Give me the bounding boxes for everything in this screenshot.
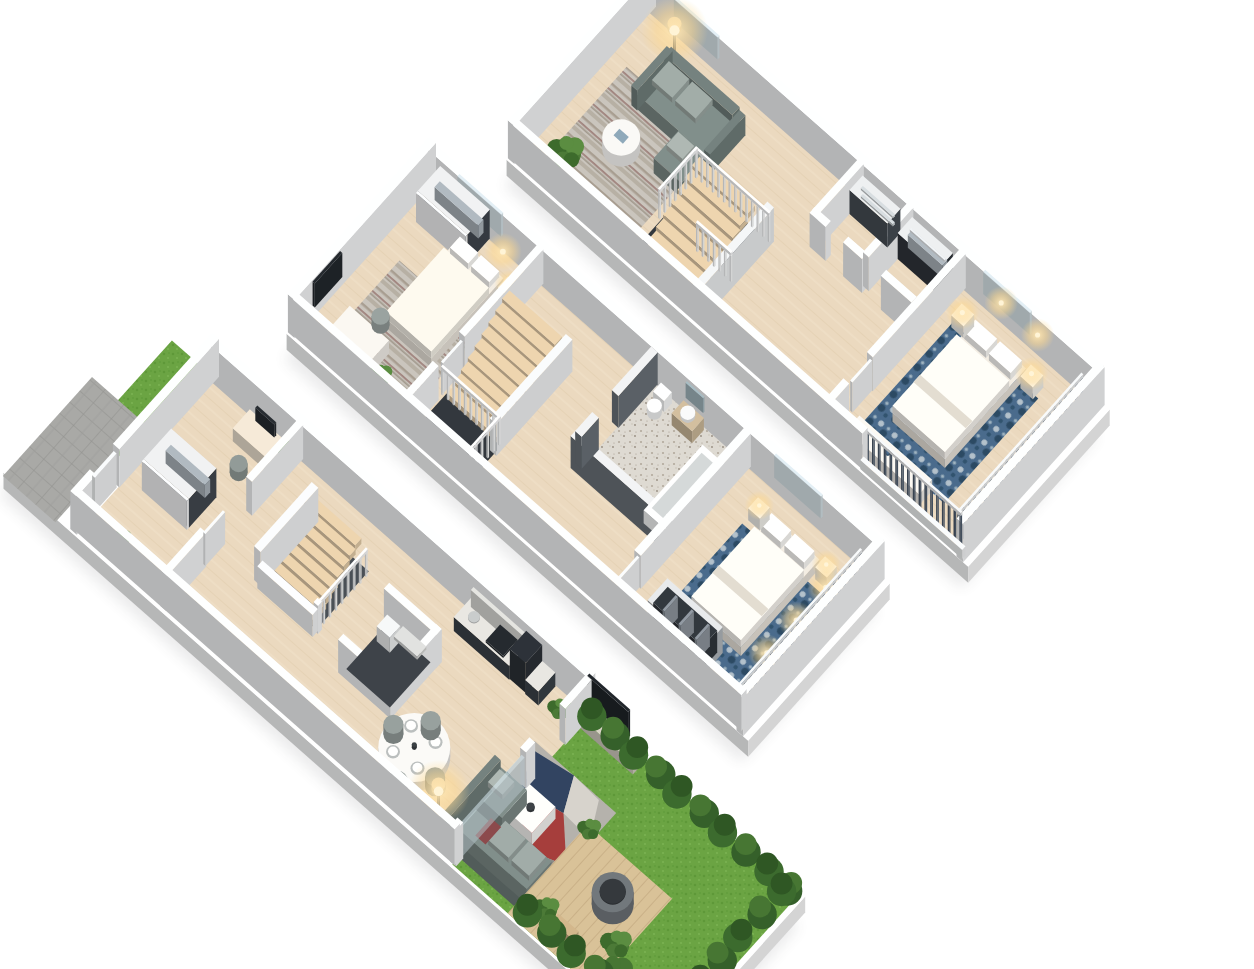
mirror	[703, 397, 704, 413]
balustrade	[690, 157, 692, 184]
wardrobe-frame	[187, 499, 189, 530]
louver-glazing	[908, 468, 909, 500]
balustrade	[675, 174, 676, 202]
balustrade	[701, 156, 702, 183]
balustrade	[674, 174, 676, 201]
louver-glazing	[926, 484, 927, 515]
balustrade	[752, 200, 753, 228]
balustrade	[348, 572, 349, 598]
louver-glazing	[891, 453, 892, 485]
balustrade	[499, 419, 500, 446]
balustrade	[709, 235, 710, 263]
balustrade	[335, 586, 336, 611]
louver-glazing	[885, 448, 886, 480]
balustrade	[465, 389, 466, 416]
balustrade	[708, 161, 709, 189]
toilet-bowl	[647, 398, 662, 412]
balustrade	[498, 419, 499, 445]
balustrade	[454, 379, 455, 405]
fire-pit-bowl	[600, 879, 626, 904]
hedge-row	[626, 736, 648, 758]
hall-wall	[863, 252, 869, 291]
deck-plant	[611, 930, 623, 942]
balustrade	[703, 230, 704, 257]
balustrade	[460, 384, 461, 410]
balustrade	[360, 559, 361, 585]
balustrade	[482, 404, 483, 431]
balustrade	[712, 166, 713, 193]
near-wall	[455, 823, 460, 865]
balustrade	[329, 592, 331, 617]
ceiling-light	[500, 249, 506, 255]
deck-plant	[588, 829, 598, 839]
balustrade	[717, 171, 718, 198]
deck-plant	[614, 944, 627, 957]
bedside-lamp	[824, 562, 828, 566]
louver-glazing	[879, 443, 880, 474]
balustrade	[713, 166, 714, 194]
lamp-glow	[434, 787, 444, 797]
lamp-glow	[669, 25, 679, 35]
balustrade	[769, 215, 770, 243]
balustrade	[747, 195, 748, 222]
balustrade	[443, 369, 444, 395]
balustrade	[740, 190, 741, 217]
balustrade	[447, 374, 448, 400]
balustrade	[330, 592, 331, 618]
balustrade	[691, 157, 692, 184]
balustrade	[730, 180, 731, 207]
balustrade	[698, 225, 699, 252]
balustrade	[745, 195, 746, 222]
balustrade	[324, 599, 325, 624]
louver-glazing	[920, 479, 921, 511]
balustrade	[736, 185, 737, 213]
tv-panel	[313, 282, 315, 308]
balustrade	[336, 586, 337, 611]
balustrade	[734, 186, 735, 213]
dining-chair	[383, 715, 403, 734]
deck-plant	[542, 897, 552, 907]
balustrade	[757, 205, 758, 232]
balustrade	[488, 432, 489, 458]
louver-glazing	[868, 432, 869, 463]
balustrade	[724, 250, 726, 277]
potted-plant	[559, 136, 573, 150]
balustrade	[323, 599, 324, 624]
balustrade	[764, 210, 765, 237]
louver-glazing	[961, 515, 962, 546]
balustrade	[686, 162, 687, 189]
balustrade	[725, 250, 726, 277]
louver-glazing	[932, 489, 933, 520]
door-leaf	[203, 532, 205, 566]
balustrade	[702, 156, 703, 183]
balustrade	[714, 240, 715, 267]
balustrade	[681, 168, 682, 196]
balustrade	[724, 175, 725, 203]
desk-chair	[372, 308, 390, 325]
window	[821, 495, 823, 519]
balustrade	[486, 432, 487, 458]
balustrade	[342, 579, 343, 604]
balustrade	[720, 245, 721, 272]
louver-glazing	[943, 499, 944, 530]
louver-glazing	[874, 437, 875, 469]
balustrade	[707, 235, 709, 262]
near-wall	[741, 689, 746, 731]
hedge-row	[707, 942, 729, 964]
hedge-row	[731, 919, 753, 941]
balustrade	[751, 200, 752, 227]
kitchen-sink	[468, 611, 480, 623]
hedge-row	[756, 853, 778, 875]
balustrade	[475, 399, 476, 425]
balustrade	[679, 168, 681, 195]
balustrade	[494, 426, 495, 452]
louver-glazing	[903, 463, 904, 495]
bathroom-wall	[612, 390, 619, 428]
balustrade	[768, 215, 769, 242]
louver-glazing	[949, 504, 950, 536]
balustrade	[719, 171, 720, 198]
bedside-lamp	[757, 503, 761, 507]
balustrade	[713, 240, 714, 267]
hedge-row	[564, 935, 586, 957]
balustrade	[441, 369, 443, 395]
balustrade	[458, 384, 460, 410]
balustrade	[729, 181, 730, 208]
bedside-lamp	[1029, 371, 1034, 376]
door-leaf	[850, 381, 852, 413]
balustrade	[347, 572, 348, 597]
balustrade	[696, 151, 697, 179]
balustrade	[695, 151, 696, 178]
louver-glazing	[955, 509, 956, 541]
balustrade	[731, 254, 732, 282]
plate	[388, 747, 398, 757]
dining-chair	[421, 711, 441, 730]
rear-wall-stub	[560, 704, 566, 745]
balustrade	[660, 192, 661, 220]
bathroom-wall	[575, 431, 582, 469]
wall-light	[1035, 332, 1040, 337]
wall-light	[999, 300, 1004, 305]
bedside-lamp	[960, 310, 965, 315]
balustrade	[658, 192, 659, 219]
hall-wall	[826, 221, 831, 261]
window	[718, 35, 720, 59]
balustrade	[353, 566, 354, 591]
balustrade	[665, 186, 666, 213]
hedge-row	[539, 914, 561, 936]
balustrade	[758, 205, 759, 232]
balustrade	[492, 426, 494, 452]
front-wall	[70, 491, 77, 535]
balustrade	[669, 180, 670, 207]
balustrade	[762, 210, 763, 237]
balustrade	[723, 176, 724, 203]
hedge-row	[581, 697, 603, 719]
balustrade	[448, 374, 449, 400]
balustrade	[670, 180, 671, 207]
hedge-row	[671, 775, 693, 797]
hedge-row	[771, 873, 793, 895]
hedge-row	[735, 833, 757, 855]
basin	[680, 405, 695, 419]
monitor	[274, 422, 276, 437]
hedge-row	[516, 894, 538, 916]
balustrade	[341, 579, 343, 604]
balustrade	[470, 394, 471, 420]
balustrade	[366, 552, 367, 578]
table-decor	[527, 803, 535, 811]
balustrade	[696, 225, 698, 252]
louver-glazing	[897, 458, 898, 489]
floorplan-image	[0, 0, 1254, 969]
balustrade	[365, 552, 366, 577]
balustrade	[481, 404, 483, 430]
hedge-row	[689, 794, 711, 816]
balustrade	[730, 255, 732, 282]
balustrade	[702, 230, 704, 257]
louver-glazing	[914, 473, 915, 504]
centrepiece	[412, 742, 417, 747]
deck-plant	[585, 819, 594, 828]
newel-post	[318, 602, 322, 634]
isometric-floorplan-svg	[0, 0, 1254, 969]
balustrade	[741, 190, 742, 218]
balustrade	[359, 559, 361, 584]
balustrade	[464, 389, 466, 415]
louver-glazing	[938, 494, 939, 526]
balustrade	[477, 399, 478, 426]
hedge-row	[714, 814, 736, 836]
hedge-row	[602, 717, 624, 739]
hedge-row	[749, 896, 771, 918]
balustrade	[354, 565, 355, 590]
hedge-row	[645, 756, 667, 778]
balustrade	[471, 394, 472, 421]
balustrade	[706, 161, 707, 188]
desk-chair	[230, 455, 248, 472]
balustrade	[718, 245, 719, 272]
balustrade	[684, 163, 685, 190]
balustrade	[663, 186, 665, 213]
plate	[406, 721, 416, 731]
balustrade	[453, 379, 454, 405]
hall-wall	[246, 477, 252, 516]
